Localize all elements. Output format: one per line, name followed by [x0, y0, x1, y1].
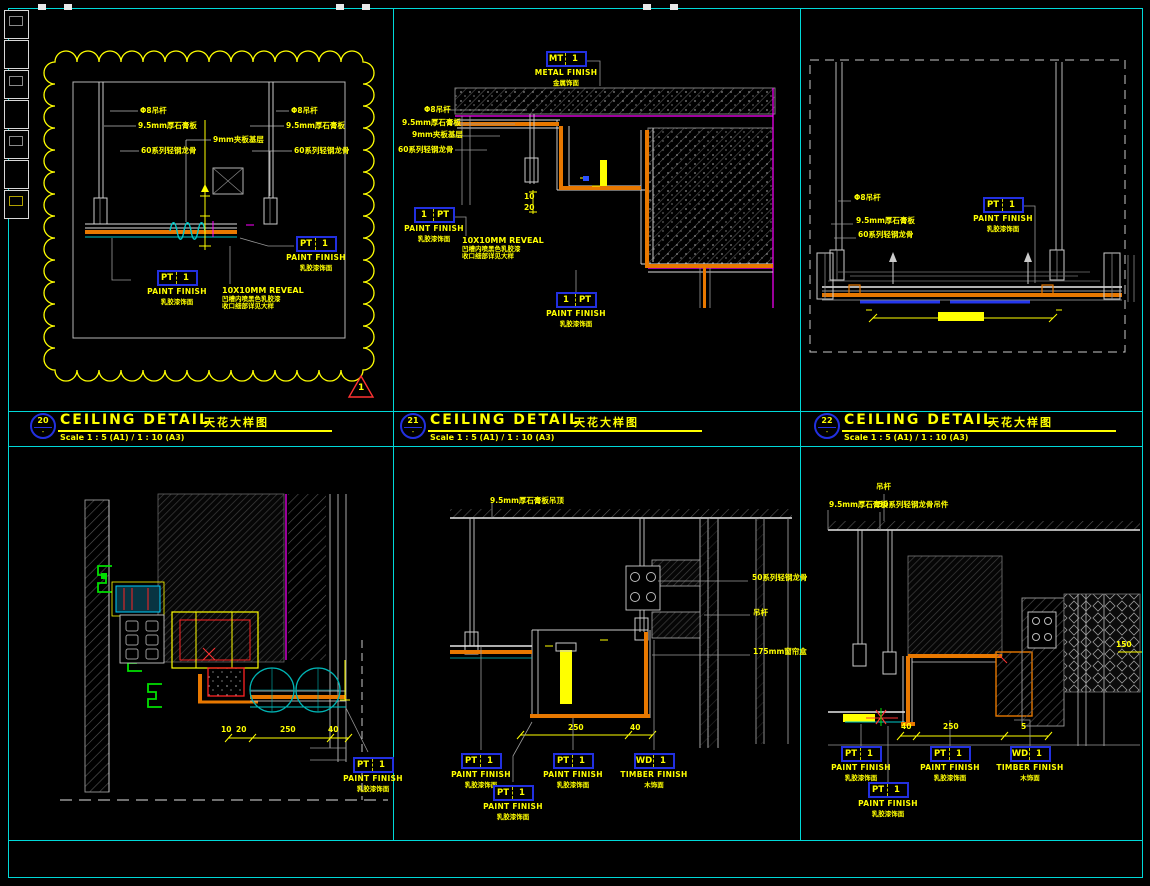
- leader-label-hanger-rod: Φ8吊杆: [854, 194, 881, 202]
- detail-number-bubble[interactable]: 22 -: [814, 413, 840, 439]
- detail-scale: Scale 1 : 5 (A1) / 1 : 10 (A3): [844, 433, 968, 442]
- leader-label-hanger-rod: 吊杆: [753, 609, 768, 617]
- finish-tag-timber[interactable]: WD1 TIMBER FINISH 木饰面: [612, 753, 696, 789]
- dimension-value: 10: [221, 726, 231, 734]
- finish-tag-metal[interactable]: MT1 METAL FINISH 金属饰面: [524, 51, 608, 87]
- dimension-value: 20: [524, 204, 534, 212]
- detail-title-cn: 天花大样图: [574, 414, 639, 430]
- detail-scale: Scale 1 : 5 (A1) / 1 : 10 (A3): [60, 433, 184, 442]
- detail-number: 21: [402, 417, 424, 425]
- leader-label-keel-hanger: 50系列轻钢龙骨吊件: [878, 501, 948, 509]
- title-underline: [842, 430, 1116, 432]
- finish-tag-paint[interactable]: PT1 PAINT FINISH 乳胶漆饰面: [846, 782, 930, 818]
- revision-triangle-number: 1: [358, 383, 364, 393]
- finish-tag-paint[interactable]: 1PT PAINT FINISH 乳胶漆饰面: [392, 207, 476, 243]
- dimension-value: 40: [328, 726, 338, 734]
- detail-title: CEILING DETAIL: [844, 412, 994, 428]
- leader-label-gypsum-board: 9.5mm厚石膏板: [138, 122, 197, 130]
- leader-label-hanger-rod: Φ8吊杆: [140, 107, 167, 115]
- leader-label-steel-keel: 60系列轻钢龙骨: [141, 147, 196, 155]
- finish-tag-paint[interactable]: PT1 PAINT FINISH 乳胶漆饰面: [274, 236, 358, 272]
- panel-bottom-middle-linework: [450, 503, 792, 782]
- leader-label-hanger-rod: Φ8吊杆: [291, 107, 318, 115]
- finish-tag-paint[interactable]: 1PT PAINT FINISH 乳胶漆饰面: [534, 292, 618, 328]
- panel-20-linework: [44, 51, 374, 397]
- title-underline: [428, 430, 702, 432]
- leader-label-hanger-rod: Φ8吊杆: [424, 106, 451, 114]
- detail-title-cn: 天花大样图: [204, 414, 269, 430]
- dimension-value: 250: [943, 723, 959, 731]
- detail-number: 22: [816, 417, 838, 425]
- leader-label-steel-keel: 60系列轻钢龙骨: [858, 231, 913, 239]
- title-underline: [58, 430, 332, 432]
- leader-label-hanger-rod: 吊杆: [876, 483, 891, 491]
- finish-tag-paint[interactable]: PT1 PAINT FINISH 乳胶漆饰面: [531, 753, 615, 789]
- finish-tag-paint[interactable]: PT1 PAINT FINISH 乳胶漆饰面: [908, 746, 992, 782]
- finish-tag-paint[interactable]: PT1 PAINT FINISH 乳胶漆饰面: [439, 753, 523, 789]
- panel-bottom-right-linework: [828, 494, 1142, 782]
- leader-label-plywood-base: 9mm夹板基层: [412, 131, 463, 139]
- dimension-value: 250: [568, 724, 584, 732]
- detail-title-cn: 天花大样图: [988, 414, 1053, 430]
- leader-label-gypsum-board: 9.5mm厚石膏板: [402, 119, 461, 127]
- finish-tag-paint[interactable]: PT1 PAINT FINISH 乳胶漆饰面: [961, 197, 1045, 233]
- finish-tag-paint[interactable]: PT1 PAINT FINISH 乳胶漆饰面: [331, 757, 415, 793]
- dimension-value: 40: [630, 724, 640, 732]
- dimension-value: 5: [1021, 723, 1026, 731]
- dimension-value: 40: [901, 723, 911, 731]
- leader-label-steel-keel: 60系列轻钢龙骨: [398, 146, 453, 154]
- leader-label-gypsum-board: 9.5mm厚石膏板: [286, 122, 345, 130]
- dimension-value: 250: [280, 726, 296, 734]
- leader-label-steel-keel: 50系列轻钢龙骨: [752, 574, 807, 582]
- leader-label-curtain-box: 175mm窗帘盒: [753, 648, 807, 656]
- detail-scale: Scale 1 : 5 (A1) / 1 : 10 (A3): [430, 433, 554, 442]
- dimension-value: 20: [236, 726, 246, 734]
- panel-bottom-left-linework: [60, 494, 388, 800]
- reveal-line2: 收口细部详见大样: [462, 253, 544, 261]
- title-block-21: 21 - CEILING DETAIL 天花大样图 Scale 1 : 5 (A…: [398, 412, 738, 448]
- detail-number-bubble[interactable]: 21 -: [400, 413, 426, 439]
- title-block-20: 20 - CEILING DETAIL 天花大样图 Scale 1 : 5 (A…: [28, 412, 368, 448]
- detail-title: CEILING DETAIL: [60, 412, 210, 428]
- finish-tag-paint[interactable]: PT1 PAINT FINISH 乳胶漆饰面: [819, 746, 903, 782]
- finish-tag-paint[interactable]: PT1 PAINT FINISH 乳胶漆饰面: [135, 270, 219, 306]
- detail-number-bubble[interactable]: 20 -: [30, 413, 56, 439]
- reveal-annotation: 10X10MM REVEAL 凹槽内喷黑色乳胶漆 收口细部详见大样: [222, 286, 304, 311]
- finish-tag-paint[interactable]: PT1 PAINT FINISH 乳胶漆饰面: [471, 785, 555, 821]
- detail-number: 20: [32, 417, 54, 425]
- title-block-22: 22 - CEILING DETAIL 天花大样图 Scale 1 : 5 (A…: [812, 412, 1150, 448]
- leader-label-gypsum-ceiling: 9.5mm厚石膏板吊顶: [490, 497, 564, 505]
- finish-tag-timber[interactable]: WD1 TIMBER FINISH 木饰面: [988, 746, 1072, 782]
- leader-label-plywood-base: 9mm夹板基层: [213, 136, 264, 144]
- dimension-value: 10: [524, 193, 534, 201]
- leader-label-steel-keel: 60系列轻钢龙骨: [294, 147, 349, 155]
- panel-21-linework: [447, 61, 775, 308]
- detail-title: CEILING DETAIL: [430, 412, 580, 428]
- leader-label-gypsum-board: 9.5mm厚石膏板: [856, 217, 915, 225]
- reveal-line2: 收口细部详见大样: [222, 303, 304, 311]
- dimension-value: 150: [1116, 641, 1132, 649]
- cad-sheet: { "sheet": {"bg": "#000000", "frame_colo…: [0, 0, 1150, 886]
